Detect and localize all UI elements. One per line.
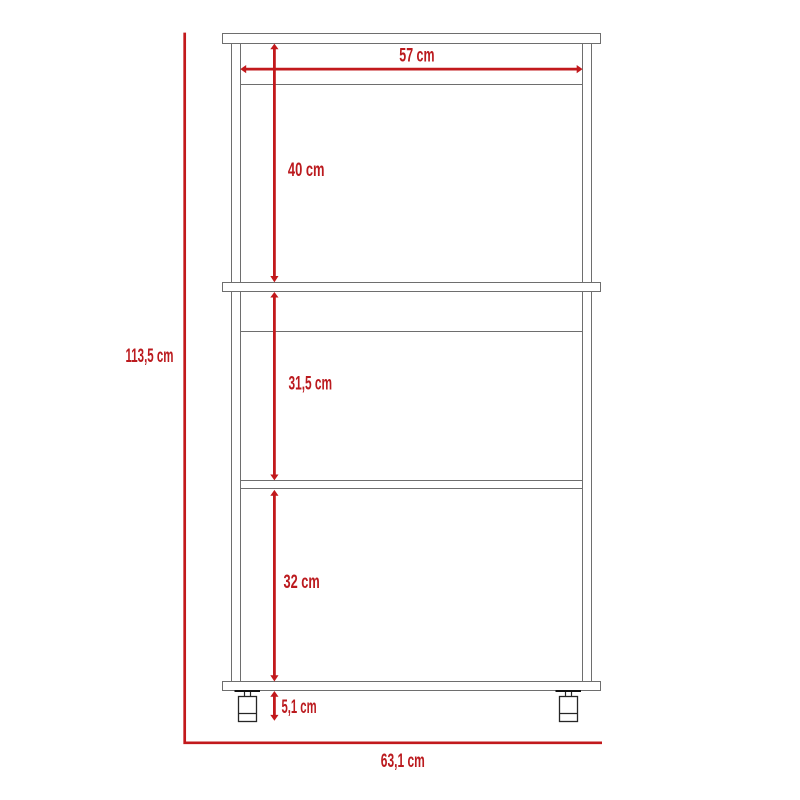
svg-text:57 cm: 57 cm (399, 46, 434, 67)
svg-text:32 cm: 32 cm (284, 572, 320, 593)
svg-text:31,5 cm: 31,5 cm (289, 374, 333, 395)
svg-text:40 cm: 40 cm (288, 160, 325, 181)
svg-text:5,1 cm: 5,1 cm (282, 697, 317, 718)
svg-text:63,1 cm: 63,1 cm (381, 751, 425, 772)
svg-text:113,5 cm: 113,5 cm (126, 346, 174, 367)
